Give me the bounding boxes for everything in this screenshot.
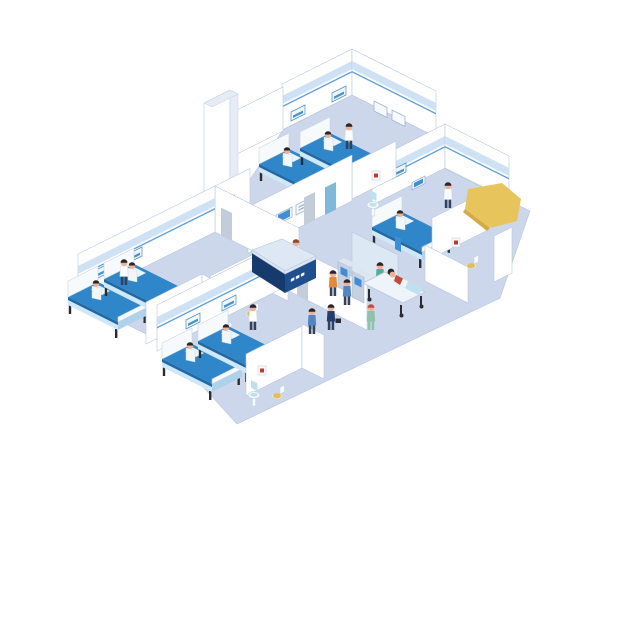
torso <box>444 189 452 200</box>
bed-leg <box>419 259 421 268</box>
toilet-seat <box>468 264 475 268</box>
patient-gown <box>186 348 195 362</box>
picture-art <box>374 174 378 178</box>
leg <box>125 276 128 285</box>
patient-gown <box>396 216 405 230</box>
patient-gown <box>92 286 101 300</box>
sink-bowl <box>369 203 377 207</box>
hospital-floor-illustration <box>0 0 640 640</box>
picture-art <box>260 369 264 373</box>
gurney-leg <box>368 289 370 298</box>
leg <box>368 321 371 330</box>
torso <box>327 311 335 322</box>
leg <box>309 325 312 334</box>
bed-leg <box>209 391 211 400</box>
leg <box>328 321 331 330</box>
leg <box>372 321 375 330</box>
gurney-leg <box>420 296 422 305</box>
picture-art <box>454 241 458 245</box>
torso <box>120 266 128 277</box>
patient-gown <box>324 137 333 151</box>
wall-picture <box>372 171 380 180</box>
gurney-wheel <box>368 298 372 302</box>
patient-gown <box>222 330 231 344</box>
wall-picture <box>452 238 460 247</box>
leg <box>313 325 316 334</box>
torso <box>345 130 353 141</box>
torso <box>249 311 257 322</box>
wall-picture <box>258 366 266 375</box>
leg <box>254 321 257 330</box>
leg <box>449 199 452 208</box>
leg <box>350 140 353 149</box>
briefcase <box>336 319 342 324</box>
leg <box>330 287 333 296</box>
torso <box>343 286 351 297</box>
leg <box>334 287 337 296</box>
isometric-hospital-scene <box>0 0 640 640</box>
gurney-wheel <box>420 305 424 309</box>
leg <box>250 321 253 330</box>
toilet-seat <box>274 394 281 398</box>
door <box>221 208 232 241</box>
patient-head <box>390 272 396 278</box>
patient-gown <box>128 268 137 282</box>
leg <box>332 321 335 330</box>
leg <box>121 276 124 285</box>
torso <box>329 277 337 288</box>
sink-bowl <box>250 393 258 397</box>
gurney-leg <box>400 305 402 314</box>
gurney-wheel <box>400 314 404 318</box>
bed-leg <box>115 329 117 338</box>
torso <box>308 315 316 326</box>
bathroom-right-side-wall <box>494 227 512 282</box>
door <box>325 182 336 215</box>
leg <box>348 296 351 305</box>
patient-gown <box>283 153 292 167</box>
door <box>304 192 315 225</box>
leg <box>346 140 349 149</box>
torso <box>367 311 375 322</box>
leg <box>344 296 347 305</box>
leg <box>445 199 448 208</box>
